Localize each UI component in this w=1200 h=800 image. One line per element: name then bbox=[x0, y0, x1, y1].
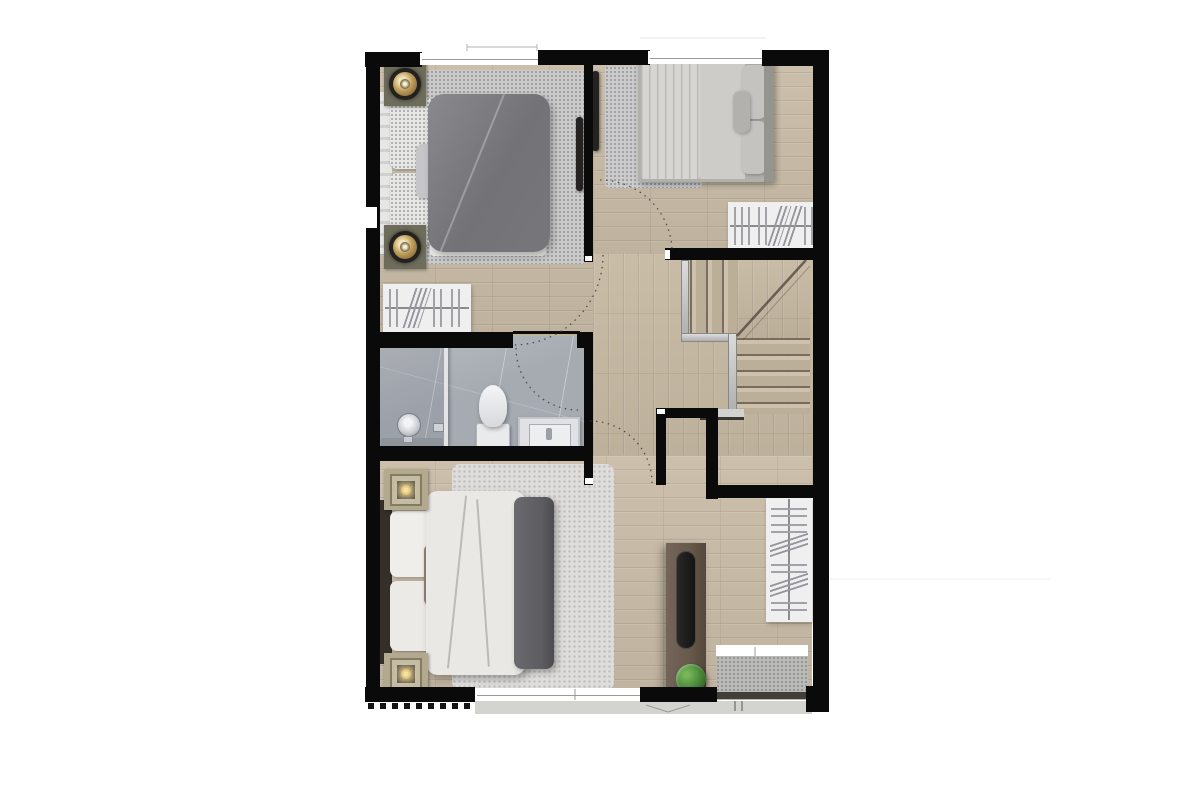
projection-dashed-line bbox=[368, 703, 472, 709]
door-jamb bbox=[657, 409, 665, 414]
wall-tv-icon bbox=[576, 117, 583, 191]
wall-corner-br bbox=[806, 686, 829, 712]
faucet-icon bbox=[546, 428, 552, 440]
duvet-fold bbox=[436, 94, 505, 252]
nightstand bbox=[384, 225, 426, 269]
square-lamp-icon bbox=[390, 658, 422, 690]
door-jamb bbox=[665, 250, 670, 259]
wall-left bbox=[366, 52, 380, 702]
shower-base bbox=[403, 436, 413, 443]
bed2-pillow-small bbox=[733, 91, 750, 133]
round-lamp-icon bbox=[389, 68, 421, 100]
window-bedroom-2 bbox=[648, 51, 764, 64]
bed1-duvet bbox=[428, 94, 550, 252]
wall-left-gap bbox=[366, 207, 377, 228]
toilet-bowl-icon bbox=[479, 385, 507, 427]
wardrobe-master bbox=[766, 497, 812, 622]
balcony-dark-band bbox=[716, 692, 808, 699]
stair-upper-run bbox=[690, 258, 737, 338]
wall-bedroom2-bottom bbox=[665, 248, 815, 260]
wall-master-entry bbox=[656, 408, 666, 485]
bed2-headboard bbox=[764, 58, 774, 182]
stair-railing bbox=[681, 260, 689, 340]
wardrobe-bedroom-2 bbox=[728, 202, 818, 250]
stair-railing bbox=[728, 333, 737, 415]
master-blanket bbox=[514, 497, 554, 669]
console-tv-icon bbox=[676, 551, 696, 649]
wall-bathroom-top bbox=[366, 332, 513, 348]
wall-bottom bbox=[640, 687, 717, 702]
wall-tv-icon bbox=[592, 71, 599, 151]
shower-divider bbox=[444, 340, 448, 446]
nightstand bbox=[384, 469, 428, 510]
wall-bottom bbox=[365, 687, 475, 702]
shower-mixer-icon bbox=[433, 423, 444, 432]
stair-winder-landing bbox=[737, 258, 810, 338]
balcony-ledge bbox=[716, 656, 808, 696]
window-bedroom-1 bbox=[420, 53, 540, 65]
bed2-blanket bbox=[641, 62, 700, 179]
sill-strip bbox=[475, 701, 812, 714]
square-lamp-icon bbox=[390, 474, 422, 506]
wall-right bbox=[813, 50, 829, 710]
wall-bedroom-divider bbox=[584, 52, 593, 262]
wall-master-topright bbox=[706, 485, 814, 498]
door-jamb bbox=[585, 478, 593, 484]
wall-top bbox=[538, 50, 650, 65]
wall-bathroom-bottom bbox=[366, 446, 593, 461]
bathroom-door-header bbox=[513, 331, 580, 334]
round-lamp-icon bbox=[389, 231, 421, 263]
door-jamb bbox=[585, 256, 592, 261]
stair-lower-run bbox=[737, 338, 810, 414]
window-master bbox=[475, 688, 642, 701]
wall-bathroom-right bbox=[584, 332, 593, 485]
master-duvet bbox=[426, 491, 526, 675]
floor-plan bbox=[0, 0, 1200, 800]
nightstand bbox=[384, 62, 426, 106]
shower-head-icon bbox=[397, 413, 421, 437]
wardrobe-bedroom-1 bbox=[383, 284, 471, 332]
